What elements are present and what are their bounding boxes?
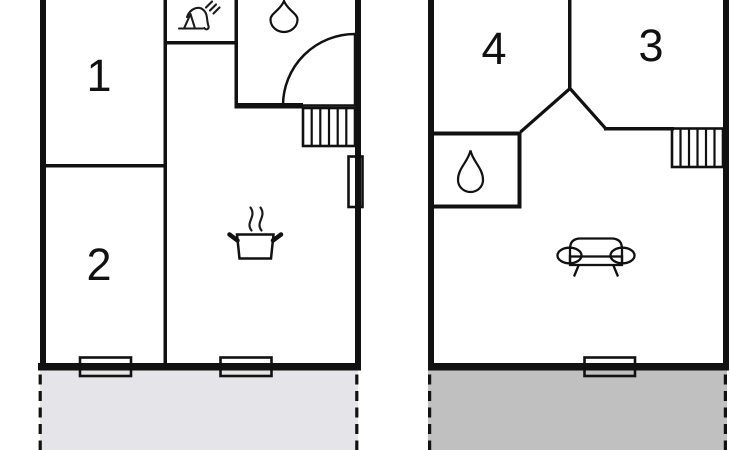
room-4-label: 4 (481, 23, 506, 74)
outer-wall-left (428, 0, 434, 370)
inner-wall-landing (604, 127, 674, 131)
balcony-area (428, 371, 727, 450)
cooking-pot-icon (230, 208, 282, 259)
upper-floor-walls (428, 0, 729, 371)
outer-wall-right (723, 0, 729, 370)
floorplan-canvas: 1 2 (0, 0, 730, 450)
stairs-upper (672, 129, 723, 168)
front-terrace (40, 371, 358, 450)
room-3-label: 3 (638, 20, 663, 71)
steam-lines (250, 208, 263, 231)
inner-wall-bathroom-left (235, 0, 239, 106)
upper-floor: 4 3 (428, 0, 729, 450)
pot-body (237, 235, 274, 259)
sofa-icon (558, 239, 635, 277)
inner-wall-room1-room2 (46, 164, 164, 168)
tap-stand (184, 14, 195, 29)
outer-wall-right (355, 0, 361, 370)
bathroom-wall-top (434, 132, 522, 136)
sofa-leg-left (574, 265, 579, 277)
upper-balcony (428, 371, 727, 450)
terrace-area (40, 371, 358, 450)
outer-wall-bottom (38, 363, 361, 371)
inner-wall-room-divider (568, 0, 572, 90)
room-2-label: 2 (86, 239, 111, 290)
tap-spray-line (210, 5, 216, 11)
stairs-ground (303, 108, 355, 146)
room-1-label: 1 (86, 50, 111, 101)
water-drop-icon (271, 1, 298, 32)
sofa-leg-right (613, 265, 618, 277)
tap-spray-line (206, 2, 212, 8)
corner-shower-icon (283, 34, 355, 106)
bathroom-wall-right (518, 132, 522, 209)
ground-floor: 1 2 (38, 0, 363, 450)
outer-wall-bottom (428, 363, 729, 371)
steam-line (260, 208, 263, 231)
tap-spray-line (214, 8, 220, 14)
steam-line (250, 208, 253, 231)
floor-plan-page: 1 2 (0, 0, 730, 450)
inner-wall-bathroom-bottom (235, 103, 304, 109)
sloped-wall-right (570, 89, 607, 130)
tap-spout (187, 8, 209, 29)
outer-wall-left (40, 0, 46, 370)
water-drop-icon (458, 151, 483, 193)
tap-icon (179, 2, 220, 30)
bathroom-wall-bottom (434, 205, 522, 209)
inner-wall-vertical-main (164, 0, 168, 363)
sloped-wall-left (521, 89, 571, 133)
inner-wall-wc-bottom (167, 41, 238, 45)
